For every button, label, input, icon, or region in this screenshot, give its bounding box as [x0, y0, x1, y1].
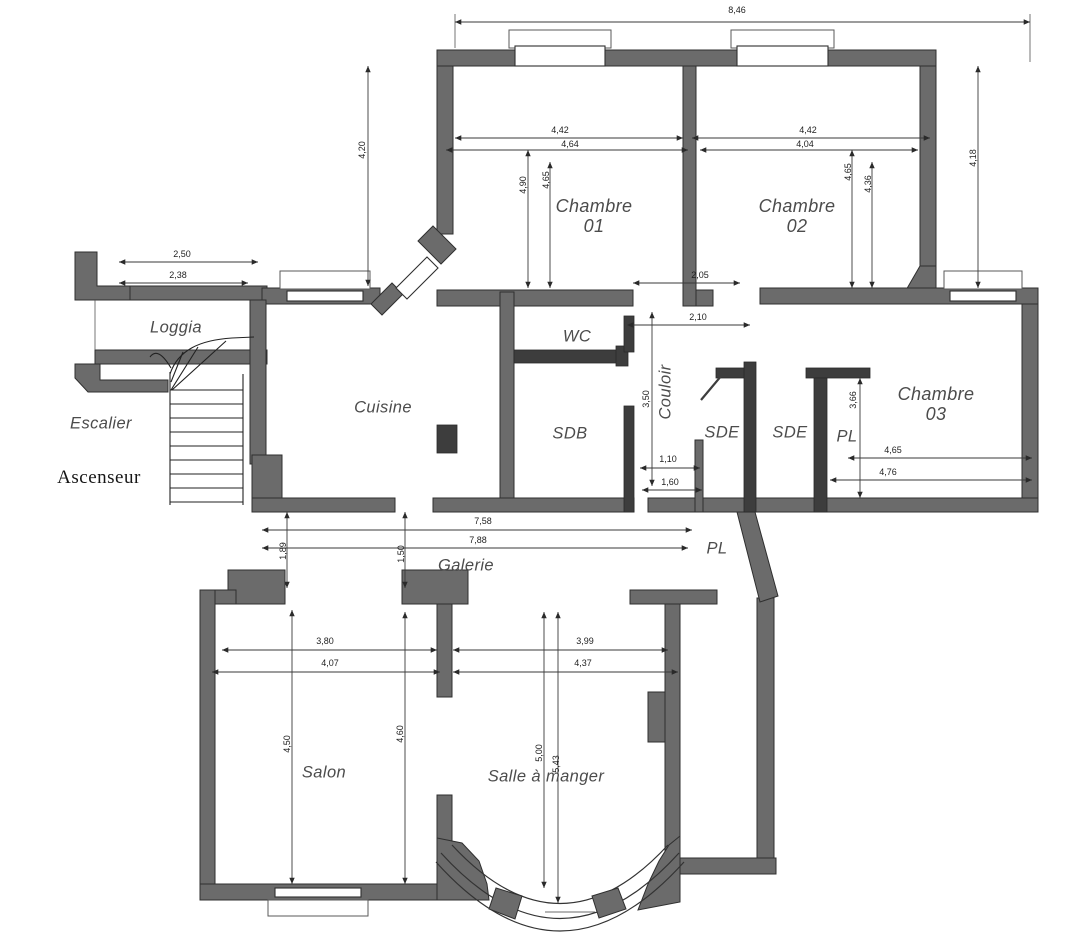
dim-loggia-w2: 2,38	[169, 270, 187, 280]
dim-sam-h2: 5,43	[551, 755, 561, 773]
room-label-loggia: Loggia	[150, 319, 202, 338]
room-label-chambre-02-line1: Chambre	[759, 196, 836, 216]
room-label-pl-1: PL	[837, 428, 858, 447]
dim-ch01-w1: 4,42	[551, 125, 569, 135]
dim-ch02-w2: 4,04	[796, 139, 814, 149]
diagonal-window	[396, 257, 438, 299]
room-label-chambre-02-line2: 02	[759, 216, 836, 236]
dim-right-side: 4,18	[968, 149, 978, 167]
room-label-sde-2: SDE	[772, 424, 807, 443]
room-label-escalier: Escalier	[70, 415, 132, 434]
room-label-chambre-01: Chambre 01	[556, 196, 633, 236]
dim-ch03-h: 3,66	[848, 391, 858, 409]
dim-salon-w2: 4,07	[321, 658, 339, 668]
dim-ch02-w1: 4,42	[799, 125, 817, 135]
door-leaf	[701, 369, 727, 400]
dim-sdb-door2: 1,60	[661, 477, 679, 487]
room-label-ascenseur: Ascenseur	[57, 467, 141, 489]
bay-window	[436, 836, 684, 931]
dim-sdb-door1: 1,10	[659, 454, 677, 464]
room-label-wc: WC	[563, 328, 591, 347]
room-label-sdb: SDB	[552, 425, 587, 444]
floor-plan: Chambre 01 Chambre 02 Chambre 03 Loggia …	[0, 0, 1075, 943]
dim-galerie-w2: 7,88	[469, 535, 487, 545]
dim-sam-h1: 5,00	[534, 744, 544, 762]
dim-ch03-w2: 4,76	[879, 467, 897, 477]
room-label-salon: Salon	[302, 764, 346, 783]
room-label-chambre-03-line1: Chambre	[898, 384, 975, 404]
dim-galerie-h2: 1,50	[396, 545, 406, 563]
dim-salon-w1: 3,80	[316, 636, 334, 646]
dim-ch02-h1: 4,65	[843, 163, 853, 181]
dim-hall-len: 3,50	[641, 390, 651, 408]
dim-ch01-w2: 4,64	[561, 139, 579, 149]
room-label-pl-2: PL	[707, 540, 728, 559]
dim-ch03-w1: 4,65	[884, 445, 902, 455]
dim-salon-h1: 4,50	[282, 735, 292, 753]
dim-left-side: 4,20	[357, 141, 367, 159]
dim-hall-top2: 2,10	[689, 312, 707, 322]
room-label-galerie: Galerie	[438, 557, 494, 576]
floor-plan-drawing	[0, 0, 1075, 943]
room-label-chambre-03-line2: 03	[898, 404, 975, 424]
dim-hall-top1: 2,05	[691, 270, 709, 280]
dim-ch01-h1: 4,90	[518, 176, 528, 194]
dim-loggia-w1: 2,50	[173, 249, 191, 259]
room-label-chambre-03: Chambre 03	[898, 384, 975, 424]
room-label-couloir: Couloir	[657, 364, 676, 419]
room-label-salle-a-manger: Salle à manger	[488, 768, 605, 787]
dim-ch02-h2: 4,36	[863, 175, 873, 193]
room-label-chambre-01-line1: Chambre	[556, 196, 633, 216]
dim-galerie-w1: 7,58	[474, 516, 492, 526]
dim-galerie-h1: 1,89	[278, 542, 288, 560]
room-label-sde-1: SDE	[704, 424, 739, 443]
room-label-chambre-01-line2: 01	[556, 216, 633, 236]
room-label-cuisine: Cuisine	[354, 399, 412, 418]
dim-ch01-h2: 4,65	[541, 171, 551, 189]
dim-sam-w2: 4,37	[574, 658, 592, 668]
dim-total-top: 8,46	[728, 5, 746, 15]
dim-sam-w1: 3,99	[576, 636, 594, 646]
dim-salon-h2: 4,60	[395, 725, 405, 743]
room-label-chambre-02: Chambre 02	[759, 196, 836, 236]
